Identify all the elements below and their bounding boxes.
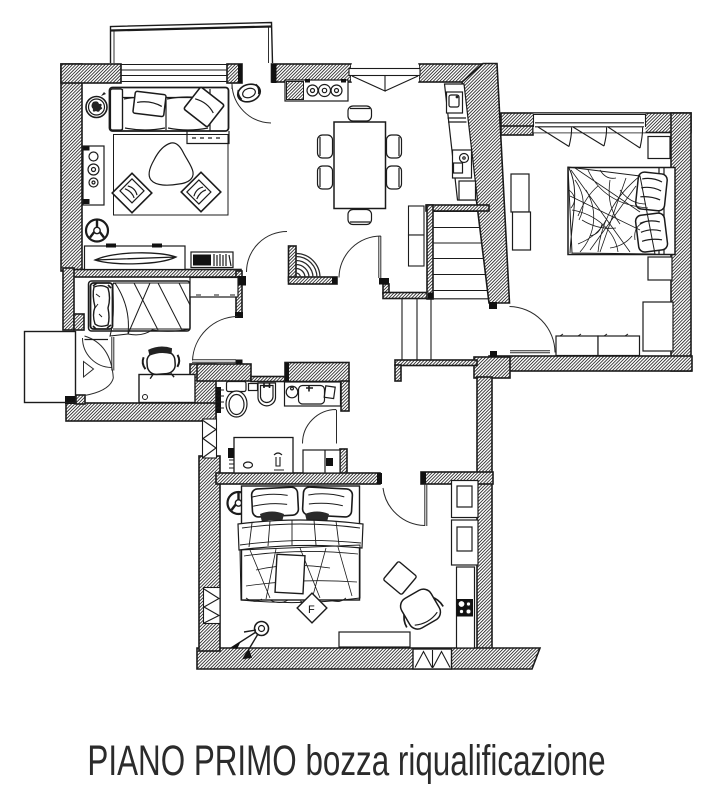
- svg-text:F: F: [308, 604, 315, 616]
